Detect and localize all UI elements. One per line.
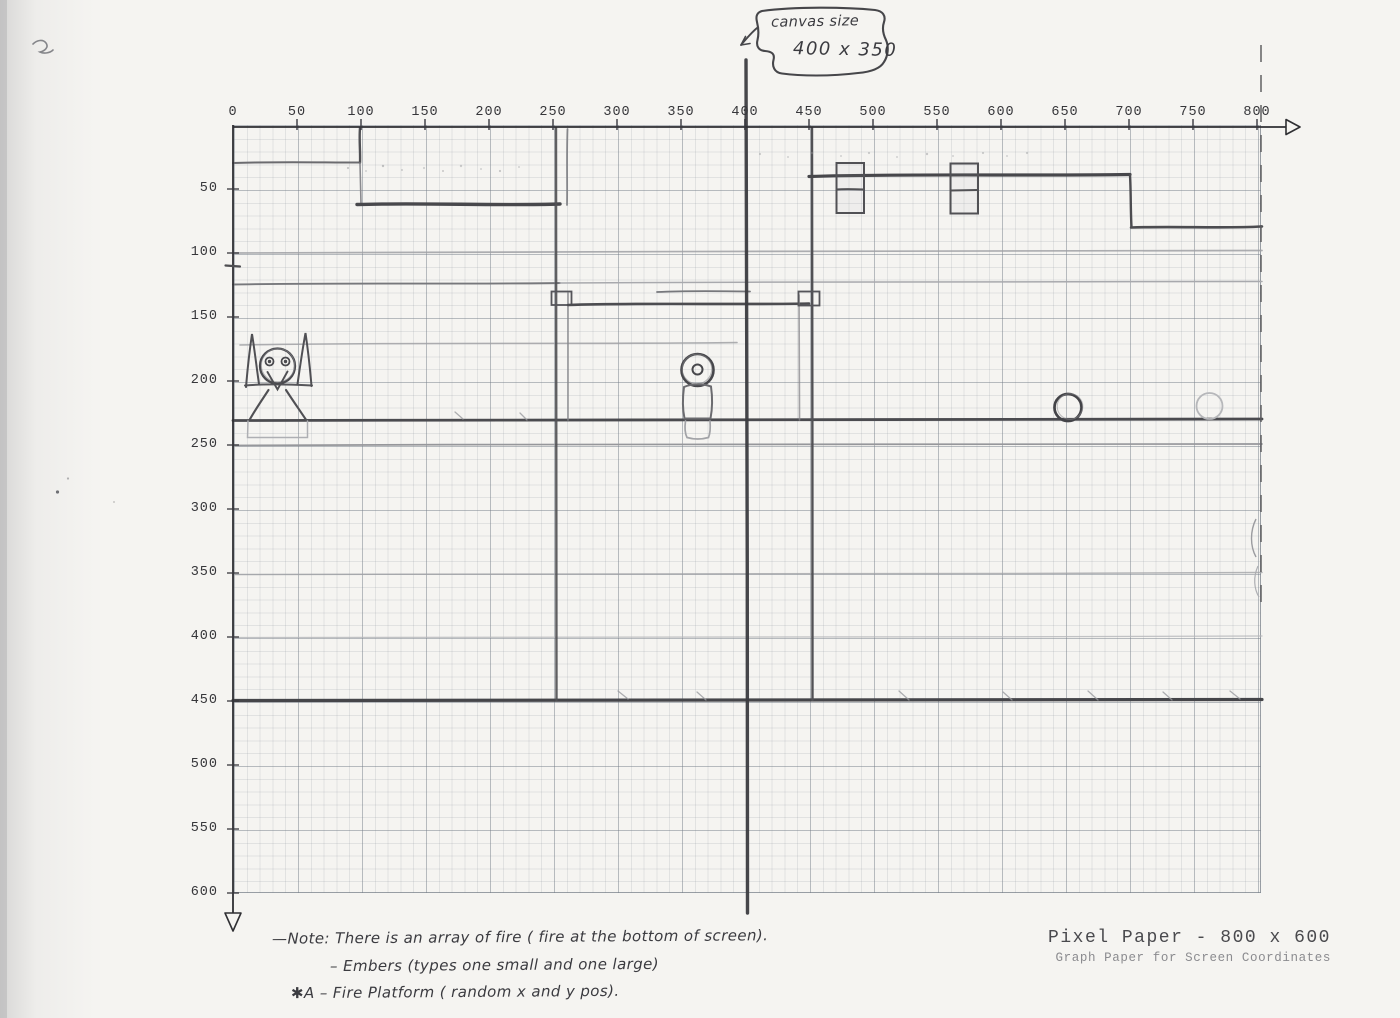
- y-tick-label: 450: [162, 692, 218, 707]
- note-line-fire-array: —Note: There is an array of fire ( fire …: [272, 926, 768, 947]
- y-tick-mark: [227, 508, 239, 510]
- scan-specks: [56, 477, 115, 503]
- y-tick-label: 200: [162, 372, 218, 387]
- x-tick-mark: [616, 119, 618, 130]
- y-tick-label: 400: [162, 628, 218, 643]
- right-boundary-bracket: [1252, 519, 1257, 557]
- x-tick-label: 0: [228, 105, 237, 120]
- y-tick-label: 500: [162, 756, 218, 771]
- column-right-edge: [799, 295, 800, 420]
- canvas-size-label: canvas size: [771, 13, 859, 31]
- pupil-left: [268, 360, 271, 363]
- pawn-body-lower: [685, 421, 710, 439]
- x-tick-label: 250: [539, 105, 566, 120]
- y-tick-mark: [227, 444, 239, 446]
- x-tick-mark: [296, 119, 298, 130]
- x-tick-mark: [1064, 119, 1066, 130]
- paper-title: Pixel Paper - 800 x 600: [1048, 928, 1331, 948]
- x-axis-arrowhead: [1286, 120, 1300, 135]
- x-tick-mark: [1256, 119, 1258, 130]
- x-tick-label: 650: [1051, 105, 1078, 120]
- y-tick-mark: [227, 188, 239, 190]
- x-tick-label: 450: [795, 105, 822, 120]
- x-tick-label: 200: [475, 105, 502, 120]
- x-tick-label: 800: [1243, 105, 1270, 120]
- right-boundary-bracket2: [1255, 566, 1259, 597]
- x-tick-label: 50: [288, 105, 306, 120]
- y-tick-mark: [227, 764, 239, 766]
- canvas-boundary-line: [746, 60, 748, 913]
- line-y125-left: [233, 283, 560, 285]
- y-tick-label: 550: [162, 820, 218, 835]
- y-tick-label: 600: [162, 884, 218, 899]
- pawn-eye: [693, 365, 703, 375]
- x-tick-label: 750: [1179, 105, 1206, 120]
- item-box: [837, 163, 865, 213]
- ember-circle-echo: [1057, 394, 1083, 420]
- item-box: [951, 164, 979, 214]
- y-tick-mark: [227, 636, 239, 638]
- x-tick-label: 350: [667, 105, 694, 120]
- note-line-embers: – Embers (types one small and one large): [330, 955, 659, 975]
- x-tick-mark: [744, 119, 746, 130]
- x-tick-mark: [360, 119, 362, 130]
- base-outline: [248, 421, 308, 438]
- eraser-dot-row: [347, 152, 1028, 172]
- ember-circle-faint: [1197, 393, 1223, 419]
- y-axis-arrowhead: [225, 913, 241, 931]
- x-tick-mark: [1128, 119, 1130, 130]
- horn-right: [298, 333, 312, 386]
- x-tick-label: 500: [859, 105, 886, 120]
- y-tick-mark: [227, 252, 239, 254]
- x-tick-mark: [424, 119, 426, 130]
- note-line-fire-platform: ✱A – Fire Platform ( random x and y pos)…: [291, 982, 620, 1002]
- x-tick-mark: [488, 119, 490, 130]
- pit-wall-line-lower: [360, 163, 361, 204]
- paper-subtitle: Graph Paper for Screen Coordinates: [1056, 951, 1331, 965]
- pawn-head-echo: [682, 354, 712, 384]
- x-tick-mark: [1192, 119, 1194, 130]
- room-top-line: [657, 291, 750, 292]
- column-right-line: [812, 128, 813, 700]
- ledge-line: [233, 162, 359, 163]
- x-tick-mark: [680, 119, 682, 130]
- column-left-line: [556, 128, 557, 700]
- y-tick-label: 150: [162, 308, 218, 323]
- y-tick-mark: [227, 316, 239, 318]
- x-tick-mark: [872, 119, 874, 130]
- canvas-size-value: 400 x 350: [793, 38, 898, 61]
- ground-hatch-marks: [455, 412, 1240, 700]
- pawn-figure: [682, 354, 714, 439]
- y-axis-cross-tick: [226, 266, 241, 267]
- x-tick-label: 100: [347, 105, 374, 120]
- x-tick-label: 300: [603, 105, 630, 120]
- x-tick-mark: [1000, 119, 1002, 130]
- x-tick-label: 400: [731, 105, 758, 120]
- leg-right: [286, 390, 307, 421]
- y-tick-mark: [227, 892, 239, 894]
- y-tick-label: 350: [162, 564, 218, 579]
- bubble-arrow: [741, 28, 757, 45]
- platform-step-line: [1131, 227, 1262, 228]
- y-tick-label: 50: [162, 180, 218, 195]
- x-tick-label: 550: [923, 105, 950, 120]
- y-tick-mark: [227, 828, 239, 830]
- y-tick-mark: [227, 700, 239, 702]
- x-tick-mark: [552, 119, 554, 130]
- faint-line-y170: [240, 343, 737, 346]
- pit-floor-line: [357, 204, 560, 205]
- pawn-body: [683, 384, 712, 418]
- y-tick-label: 300: [162, 500, 218, 515]
- y-tick-label: 250: [162, 436, 218, 451]
- y-tick-mark: [227, 572, 239, 574]
- x-tick-label: 600: [987, 105, 1014, 120]
- room-beam-line: [568, 304, 809, 306]
- pupil-right: [284, 360, 287, 363]
- x-tick-label: 700: [1115, 105, 1142, 120]
- scanned-graph-paper-page: 0501001502002503003504004505005506006507…: [0, 0, 1400, 1018]
- x-tick-mark: [936, 119, 938, 130]
- x-tick-mark: [808, 119, 810, 130]
- x-tick-label: 150: [411, 105, 438, 120]
- leg-left: [250, 390, 269, 420]
- line-y125-right: [560, 282, 1262, 284]
- y-tick-label: 100: [162, 244, 218, 259]
- horn-left: [246, 334, 259, 387]
- corner-squiggle: [33, 40, 53, 53]
- y-tick-mark: [227, 380, 239, 382]
- platform-step-drop: [1130, 175, 1132, 227]
- column-left-edge: [567, 129, 568, 205]
